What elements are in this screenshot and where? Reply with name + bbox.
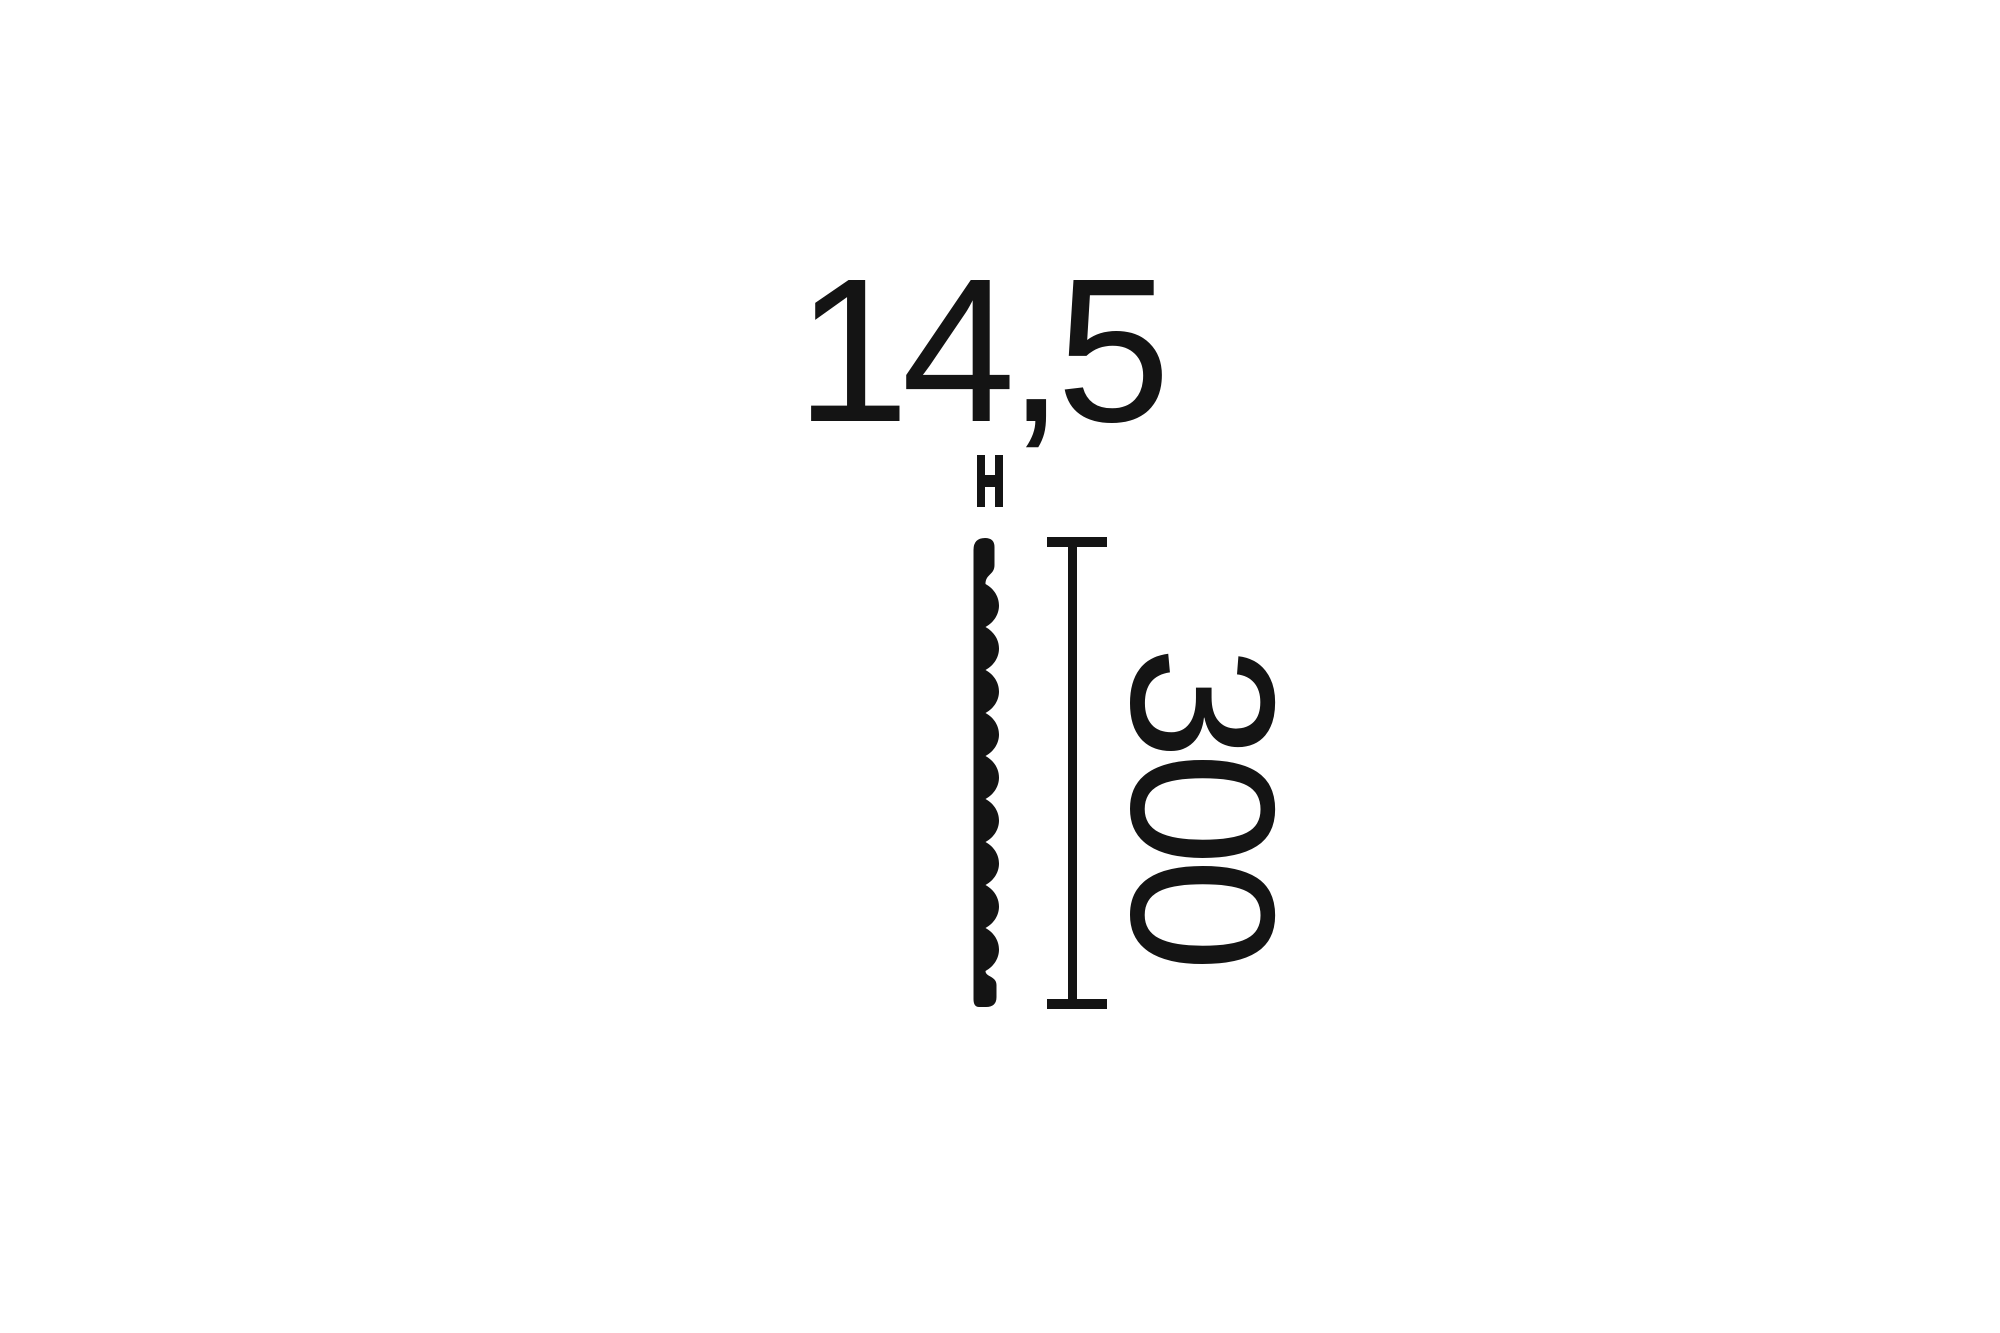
- height-dimension-label: 300: [1088, 646, 1317, 964]
- drawing-canvas: 14,5 300: [0, 0, 2000, 1333]
- profile-diagram: 14,5 300: [0, 0, 2000, 1333]
- profile-cross-section: [974, 538, 1000, 1007]
- width-marker-crossbar: [983, 475, 997, 487]
- width-dimension-label: 14,5: [796, 236, 1163, 465]
